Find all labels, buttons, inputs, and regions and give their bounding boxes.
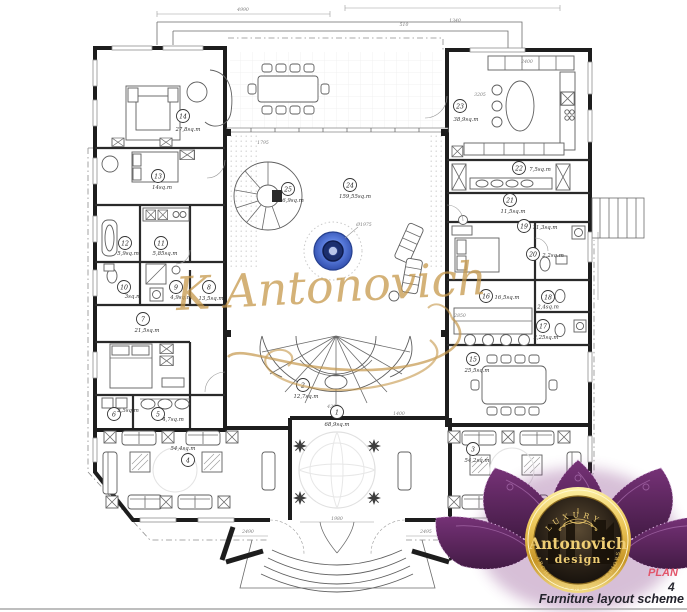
svg-text:11,3sq.m: 11,3sq.m [532,225,557,231]
watermark: K Antonovich [173,251,488,390]
svg-text:7,5sq.m: 7,5sq.m [529,167,551,173]
svg-text:5: 5 [156,412,160,419]
sheet-caption: Furniture layout scheme [539,592,684,606]
svg-text:16,5sq.m: 16,5sq.m [494,295,519,301]
svg-text:2,25sq.m: 2,25sq.m [532,335,558,341]
room-label-5: 54,7sq.m [152,408,184,424]
room-label-21: 2111,5sq.m [500,194,525,216]
room-label-20: 202,2sq.m [527,248,564,261]
svg-text:6,9sq.m: 6,9sq.m [282,198,304,204]
svg-text:1980: 1980 [331,516,343,522]
svg-text:11,5sq.m: 11,5sq.m [500,209,525,215]
plan-label: PLAN [648,567,679,579]
svg-text:3205: 3205 [474,92,486,98]
svg-text:11: 11 [157,241,165,248]
svg-text:4990: 4990 [236,7,249,13]
svg-text:12,7sq.m: 12,7sq.m [293,394,318,400]
room-label-6: 62,5sq.m [108,408,139,421]
room-label-4: 454,4sq.m [170,446,195,467]
svg-text:2850: 2850 [453,313,466,319]
logo-design-text: · design · [545,553,611,566]
living-room-left-furniture [103,431,275,509]
svg-text:159,55sq.m: 159,55sq.m [339,194,371,200]
svg-text:25: 25 [283,187,292,194]
svg-text:54,4sq.m: 54,4sq.m [170,446,195,452]
floorplan-canvas: 4990 510 1340 3205 2400 1795 2850 4300 1… [0,0,687,612]
room-label-3: 354,2sq.m [464,443,489,465]
svg-text:1: 1 [335,410,339,417]
grand-stair [260,336,412,408]
svg-text:1340: 1340 [449,18,461,24]
svg-text:2490: 2490 [241,529,254,535]
svg-text:21,5sq.m: 21,5sq.m [133,328,159,334]
svg-text:18: 18 [544,295,552,302]
room-label-12: 125,9sq.m [117,237,139,258]
svg-text:14: 14 [179,114,187,121]
entrance-hall-decor [293,432,381,508]
svg-text:54,2sq.m: 54,2sq.m [464,458,489,464]
svg-text:25,5sq.m: 25,5sq.m [463,368,489,374]
svg-text:68,9sq.m: 68,9sq.m [324,422,349,428]
svg-text:1795: 1795 [257,140,269,146]
room-label-7: 721,5sq.m [133,313,159,335]
svg-text:10: 10 [120,285,128,292]
svg-text:27,8sq.m: 27,8sq.m [174,127,200,133]
svg-text:17: 17 [539,324,547,331]
svg-text:3sq.m: 3sq.m [125,294,141,300]
svg-text:2,5sq.m: 2,5sq.m [116,408,139,414]
svg-text:21: 21 [505,198,514,205]
svg-text:4: 4 [185,458,190,465]
svg-text:15: 15 [469,357,477,364]
room-label-24: 24159,55sq.m [339,179,371,201]
svg-text:2,4sq.m: 2,4sq.m [536,305,559,311]
floorplan-drawing: 4990 510 1340 3205 2400 1795 2850 4300 1… [0,0,687,612]
svg-text:510: 510 [400,22,409,28]
entrance-porch [222,520,452,592]
svg-text:19: 19 [520,224,528,231]
svg-text:38,9sq.m: 38,9sq.m [453,117,478,123]
svg-text:2400: 2400 [520,59,533,65]
svg-text:22: 22 [514,166,523,173]
svg-text:5,85sq.m: 5,85sq.m [152,251,177,257]
svg-text:14sq.m: 14sq.m [152,185,172,191]
svg-text:23: 23 [455,104,464,111]
room-label-15: 1525,5sq.m [463,353,489,375]
svg-text:6: 6 [112,412,116,419]
logo-name-text: Antonovich [528,534,627,553]
svg-text:13: 13 [154,174,162,181]
brand-logo: LUXURY Antonovich · design · ARCHITECTUR… [436,460,687,612]
svg-text:4,7sq.m: 4,7sq.m [161,417,184,423]
room-label-10: 103sq.m [118,281,142,301]
svg-text:1400: 1400 [393,411,405,417]
room-label-22: 227,5sq.m [513,162,551,175]
svg-text:20: 20 [528,252,537,259]
room-label-23: 2338,9sq.m [453,100,478,124]
svg-text:2,2sq.m: 2,2sq.m [541,253,564,259]
svg-text:7: 7 [141,317,145,324]
svg-text:2495: 2495 [419,529,432,535]
svg-text:Ø1975: Ø1975 [355,221,372,228]
svg-text:12: 12 [121,241,129,248]
svg-text:24: 24 [345,183,354,190]
room-label-11: 115,85sq.m [152,237,177,258]
svg-text:3: 3 [471,447,475,454]
svg-text:5,9sq.m: 5,9sq.m [117,251,139,257]
